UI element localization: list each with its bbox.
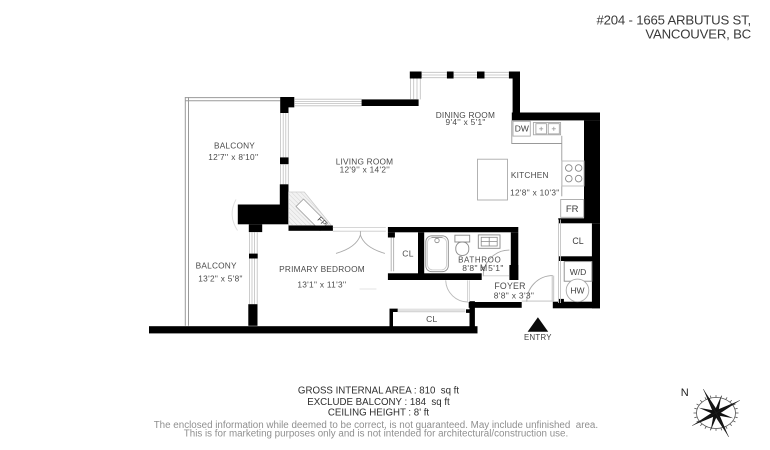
svg-text:9'4'' x 5'1": 9'4'' x 5'1" — [446, 117, 486, 127]
svg-text:12'7'' x 8'10'': 12'7'' x 8'10'' — [208, 152, 259, 162]
svg-text:DW: DW — [515, 124, 529, 134]
svg-text:GROSS INTERNAL AREA : 810 sq: GROSS INTERNAL AREA : 810 sq ft — [298, 386, 459, 397]
svg-text:KITCHEN: KITCHEN — [511, 170, 549, 180]
svg-text:#204 - 1665 ARBUTUS ST,: #204 - 1665 ARBUTUS ST, — [597, 13, 751, 28]
svg-text:M: M — [480, 263, 487, 273]
svg-text:CL: CL — [426, 314, 437, 324]
svg-text:N: N — [681, 387, 689, 399]
svg-text:CEILING HEIGHT : 8' ft: CEILING HEIGHT : 8' ft — [328, 407, 430, 418]
svg-text:W/D: W/D — [570, 267, 587, 277]
svg-text:8'8" x 3'3": 8'8" x 3'3" — [494, 290, 534, 300]
svg-text:ENTRY: ENTRY — [524, 333, 552, 342]
svg-text:CL: CL — [402, 249, 413, 259]
svg-text:HW: HW — [570, 286, 584, 296]
svg-text:13'2" x 5'8": 13'2" x 5'8" — [198, 274, 243, 284]
svg-text:12'8" x 10'3": 12'8" x 10'3" — [510, 187, 559, 197]
svg-text:12'9'' x 14'2'': 12'9'' x 14'2'' — [340, 164, 391, 174]
svg-text:This is for marketing purposes: This is for marketing purposes only and … — [184, 429, 568, 440]
svg-text:BALCONY: BALCONY — [196, 261, 237, 271]
svg-text:PRIMARY BEDROOM: PRIMARY BEDROOM — [279, 264, 365, 274]
svg-text:BALCONY: BALCONY — [214, 141, 255, 151]
svg-text:EXCLUDE BALCONY : 184 sq ft: EXCLUDE BALCONY : 184 sq ft — [307, 397, 450, 408]
svg-text:13'1" x 11'3'': 13'1" x 11'3'' — [297, 280, 346, 290]
svg-text:FR: FR — [566, 204, 579, 215]
svg-text:CL: CL — [572, 236, 583, 246]
svg-text:VANCOUVER, BC: VANCOUVER, BC — [645, 26, 751, 41]
